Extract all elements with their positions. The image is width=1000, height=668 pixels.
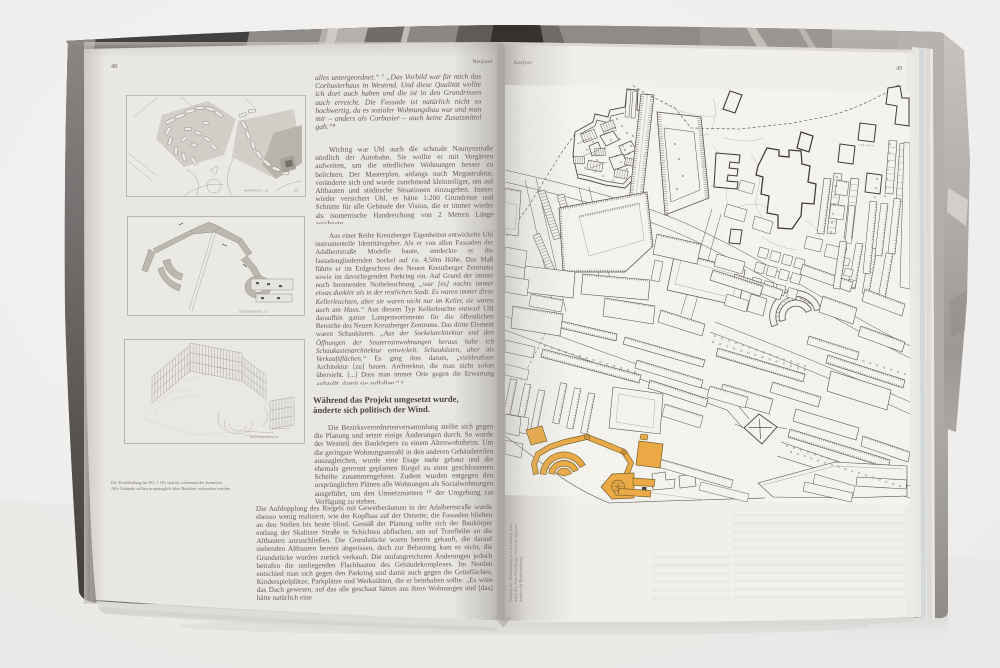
svg-text:49: 49 — [896, 65, 902, 72]
svg-text:Alle Gebäude sollten ursprüngl: Alle Gebäude sollten ursprünglich über B… — [111, 486, 231, 491]
svg-text:MASTERPLAN 1 : 50: MASTERPLAN 1 : 50 — [244, 190, 269, 193]
svg-text:48: 48 — [111, 63, 117, 70]
svg-text:ERSCHLIESSUNG 1 : 50: ERSCHLIESSUNG 1 : 50 — [250, 436, 279, 439]
svg-text:ZWISCHENSTUFE 1 : 33: ZWISCHENSTUFE 1 : 33 — [239, 311, 268, 314]
